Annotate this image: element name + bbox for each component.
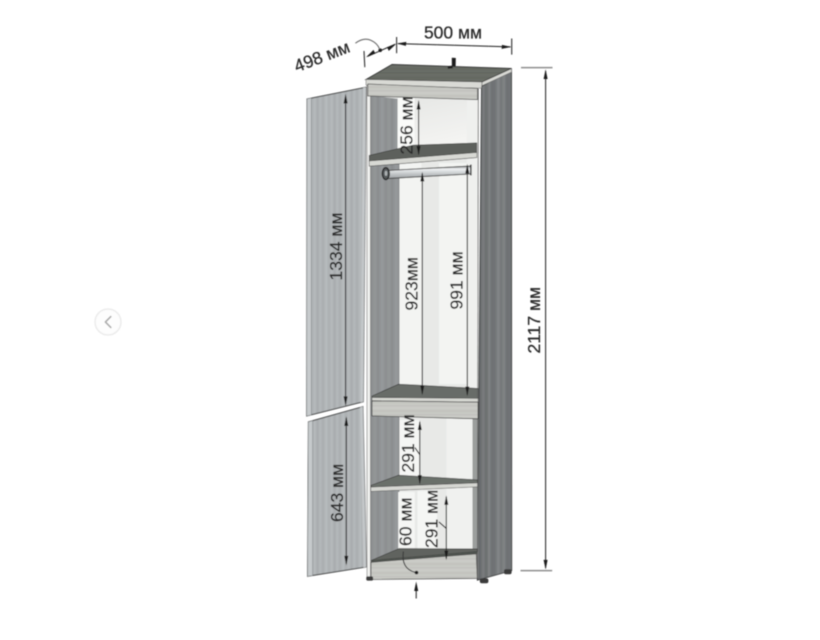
svg-text:60 мм: 60 мм [396,498,416,546]
svg-text:256 мм: 256 мм [397,96,417,154]
svg-text:991 мм: 991 мм [447,251,467,309]
svg-text:291 мм: 291 мм [421,490,441,548]
svg-text:2117 мм: 2117 мм [524,287,544,354]
svg-text:643 мм: 643 мм [327,464,347,522]
svg-text:1334 мм: 1334 мм [326,213,346,281]
svg-text:923мм: 923мм [401,257,421,310]
svg-text:291 мм: 291 мм [398,414,418,472]
svg-text:500 мм: 500 мм [424,23,482,43]
